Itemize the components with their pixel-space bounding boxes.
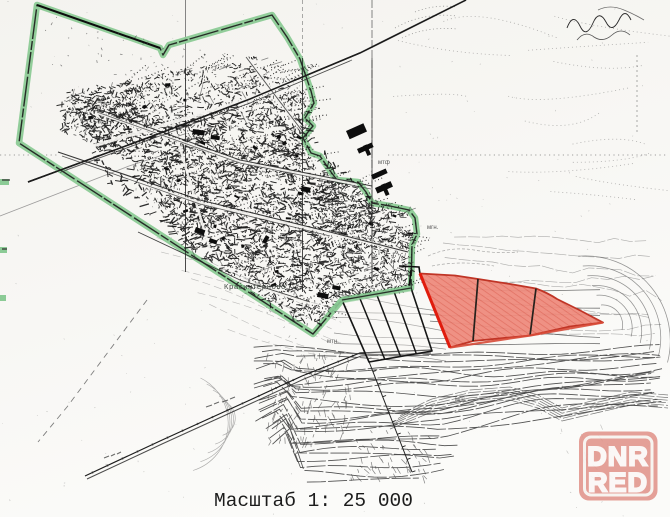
svg-text:Красинтерново: Красинтерново [224,282,286,291]
svg-text:RED: RED [588,468,648,498]
svg-text:мгн.: мгн. [427,225,439,231]
svg-text:мтн.: мтн. [327,339,339,345]
svg-text:мтф: мтф [378,160,390,166]
svg-text:мгн: мгн [455,397,465,403]
svg-text:Масштаб 1: 25 000: Масштаб 1: 25 000 [214,490,413,512]
